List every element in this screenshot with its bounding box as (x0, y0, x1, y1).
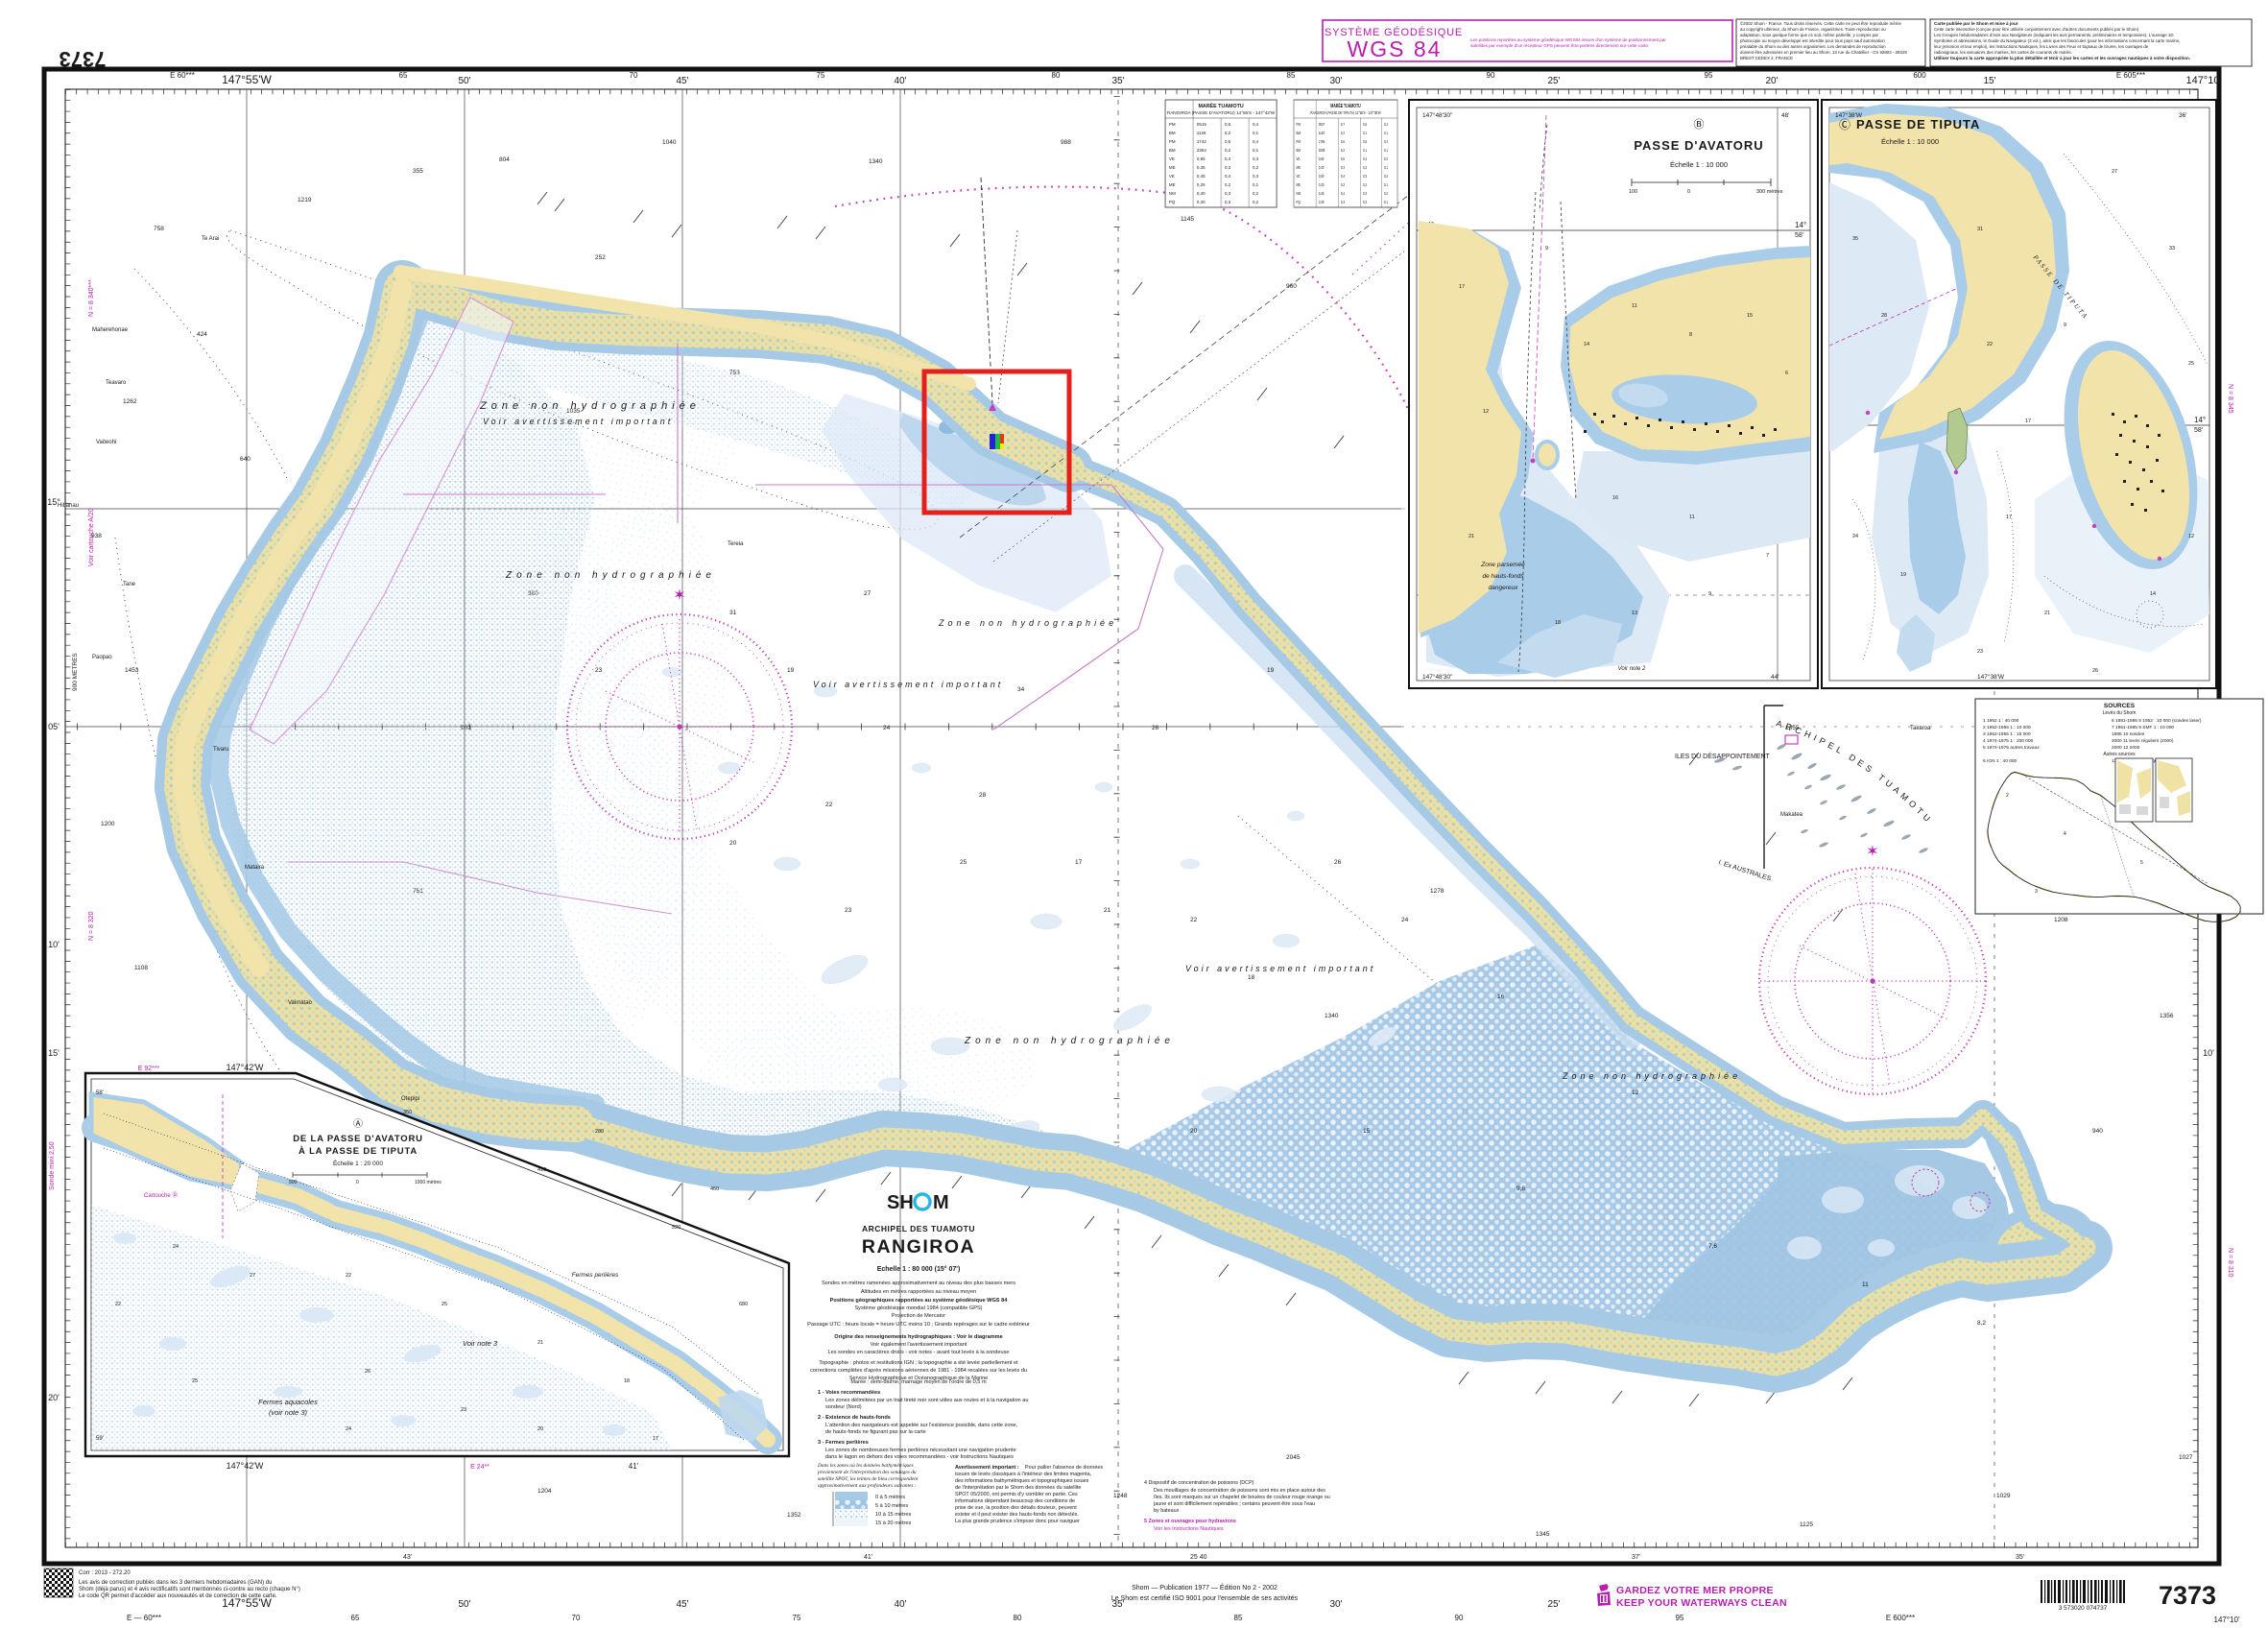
svg-text:WGS 84: WGS 84 (1348, 36, 1443, 61)
svg-text:58': 58' (1795, 232, 1803, 239)
svg-text:1742: 1742 (1197, 139, 1206, 144)
svg-text:proviennent de l'interprétatio: proviennent de l'interprétation des sond… (817, 1470, 917, 1475)
svg-text:13: 13 (1632, 610, 1637, 616)
svg-text:PQ: PQ (1297, 200, 1301, 204)
svg-text:L'attention des navigateurs es: L'attention des navigateurs est appelée … (825, 1423, 1018, 1428)
svg-text:2008: 2008 (1319, 148, 1325, 153)
svg-text:6 1981-1985 8 1952 : 10: 6 1981-1985 8 1952 : 10 000 (sondes lase… (2112, 718, 2202, 724)
svg-text:Carte publiée par le Shom et m: Carte publiée par le Shom et mise à jour (1934, 21, 2018, 26)
svg-text:0,3: 0,3 (1341, 165, 1345, 170)
svg-text:E 600***: E 600*** (1886, 1614, 1915, 1622)
svg-text:N = 8 340***: N = 8 340*** (88, 279, 95, 317)
svg-text:ME: ME (1297, 182, 1301, 187)
svg-text:7: 7 (1766, 553, 1769, 559)
svg-text:1140: 1140 (1319, 131, 1325, 135)
svg-text:26: 26 (2092, 668, 2098, 674)
svg-text:21: 21 (537, 1340, 543, 1346)
svg-text:11: 11 (1689, 515, 1695, 520)
svg-text:100: 100 (1629, 189, 1637, 195)
svg-text:14: 14 (2150, 591, 2156, 597)
svg-text:BM: BM (1297, 131, 1301, 135)
svg-text:Symboles et abréviations, le G: Symboles et abréviations, le Guide du Na… (1934, 38, 2180, 43)
svg-text:0,25: 0,25 (1197, 182, 1206, 187)
svg-text:90: 90 (1487, 71, 1495, 80)
svg-text:Voir note 3: Voir note 3 (463, 1339, 498, 1348)
svg-text:0,3: 0,3 (1225, 191, 1231, 196)
svg-text:1248: 1248 (1113, 1493, 1128, 1499)
svg-text:dangereux: dangereux (1489, 585, 1518, 591)
svg-text:leur précision et leur emploi): leur précision et leur emploi), les Inst… (1934, 44, 2149, 49)
svg-text:147°10': 147°10' (2185, 75, 2221, 86)
svg-text:22: 22 (1987, 342, 1993, 347)
svg-text:85: 85 (1234, 1614, 1243, 1622)
svg-text:Teavaro: Teavaro (106, 380, 127, 386)
svg-text:20: 20 (537, 1426, 543, 1432)
svg-text:RANGIROA (PASSE D'AVATORU) 14°: RANGIROA (PASSE D'AVATORU) 14°56'S - 147… (1167, 110, 1276, 116)
svg-text:Paopao: Paopao (92, 655, 112, 660)
svg-text:22: 22 (346, 1273, 351, 1279)
svg-text:0,40: 0,40 (1197, 191, 1206, 196)
svg-text:adaptation, sous quelque forme: adaptation, sous quelque forme que ce so… (1740, 33, 1879, 37)
svg-text:E — 60***: E — 60*** (127, 1614, 161, 1622)
svg-text:15: 15 (1747, 313, 1753, 319)
svg-text:25': 25' (1547, 76, 1560, 86)
svg-text:24: 24 (883, 725, 891, 731)
svg-text:0,1: 0,1 (1253, 148, 1259, 153)
svg-text:ME: ME (1297, 165, 1301, 170)
svg-text:Le Shom est certifié ISO 9001: Le Shom est certifié ISO 9001 pour l'ens… (1111, 1595, 1299, 1602)
svg-text:43': 43' (403, 1554, 412, 1561)
svg-text:0,35: 0,35 (1319, 200, 1325, 204)
svg-text:50': 50' (458, 76, 470, 86)
svg-text:Ⓑ: Ⓑ (1694, 118, 1705, 131)
svg-text:20': 20' (1765, 76, 1778, 86)
svg-text:758: 758 (154, 226, 164, 232)
svg-text:Zone non hydrographiée: Zone non hydrographiée (938, 618, 1117, 628)
svg-text:22: 22 (1190, 917, 1198, 923)
svg-text:0,55: 0,55 (1197, 156, 1206, 161)
svg-text:1204: 1204 (537, 1488, 552, 1495)
svg-text:12: 12 (1483, 409, 1489, 415)
svg-text:424: 424 (197, 331, 207, 338)
svg-text:PM: PM (1169, 122, 1176, 127)
svg-text:252: 252 (595, 254, 606, 261)
svg-text:80: 80 (1014, 1614, 1022, 1622)
svg-text:147°42'W: 147°42'W (227, 1063, 264, 1072)
svg-text:36': 36' (2179, 112, 2186, 119)
svg-text:48': 48' (1781, 112, 1789, 119)
svg-text:0,4: 0,4 (1253, 139, 1259, 144)
svg-text:Positions géographiques rappor: Positions géographiques rapportées au sy… (830, 1298, 1009, 1304)
svg-text:17: 17 (1459, 284, 1465, 290)
svg-text:4 1974-1975 1 : 200 000: 4 1974-1975 1 : 200 000 (1983, 738, 2034, 744)
svg-text:26: 26 (365, 1369, 370, 1375)
svg-text:147°38'W: 147°38'W (1835, 111, 1863, 119)
svg-text:18: 18 (1248, 974, 1255, 981)
svg-text:VE: VE (1297, 156, 1301, 161)
svg-text:1128: 1128 (1197, 131, 1206, 135)
svg-text:0,3: 0,3 (1341, 200, 1345, 204)
svg-text:Tane: Tane (123, 582, 136, 587)
svg-text:0,1: 0,1 (1253, 182, 1259, 187)
svg-text:10 à 15 mètres: 10 à 15 mètres (875, 1512, 912, 1518)
svg-text:satellites par exemple d'un ré: satellites par exemple d'un récepteur GP… (1470, 43, 1649, 48)
svg-text:8,2: 8,2 (1977, 1320, 1986, 1327)
svg-text:ME: ME (1169, 165, 1176, 170)
svg-text:0,30: 0,30 (1319, 182, 1325, 187)
svg-text:11: 11 (1862, 1281, 1869, 1288)
svg-text:Zone non hydrographiée: Zone non hydrographiée (479, 400, 701, 412)
svg-text:ILES DU DÉSAPPOINTEMENT: ILES DU DÉSAPPOINTEMENT (1675, 752, 1771, 760)
svg-text:2: 2 (2006, 793, 2009, 799)
svg-text:Les sondes en caractères droit: Les sondes en caractères droits - voir n… (827, 1350, 1009, 1355)
svg-text:988: 988 (1061, 139, 1071, 146)
svg-text:0,4: 0,4 (1225, 156, 1231, 161)
svg-text:65: 65 (399, 71, 408, 80)
svg-text:E 605***: E 605*** (2116, 71, 2145, 80)
svg-text:30': 30' (1329, 76, 1342, 86)
svg-text:GARDEZ VOTRE MER PROPRE: GARDEZ VOTRE MER PROPRE (1616, 1585, 1774, 1596)
svg-text:1985 10 sondes: 1985 10 sondes (2112, 731, 2145, 737)
svg-text:SOURCES: SOURCES (2104, 703, 2136, 709)
svg-text:15': 15' (1983, 76, 1995, 86)
svg-text:25 40: 25 40 (1190, 1554, 1207, 1561)
svg-text:19: 19 (1900, 572, 1906, 578)
svg-text:0: 0 (356, 1180, 359, 1185)
svg-text:E 60***: E 60*** (170, 71, 195, 80)
svg-text:23: 23 (1977, 649, 1983, 655)
svg-text:75: 75 (817, 71, 825, 80)
svg-text:1262: 1262 (123, 398, 137, 405)
svg-text:VE: VE (1297, 174, 1301, 179)
svg-text:35': 35' (1111, 76, 1124, 86)
svg-text:90: 90 (1455, 1614, 1464, 1622)
svg-text:70: 70 (572, 1614, 581, 1622)
svg-text:1756: 1756 (1319, 139, 1325, 144)
svg-text:Echelle 1 : 80 000 (15° 07'): Echelle 1 : 80 000 (15° 07') (877, 1265, 961, 1273)
svg-text:0,2: 0,2 (1341, 148, 1345, 153)
svg-text:Sondes en mètres ramenées appr: Sondes en mètres ramenées approximativem… (822, 1281, 1015, 1286)
svg-text:0,2: 0,2 (1253, 165, 1259, 170)
svg-text:2000 11 levés régu: 2000 11 levés réguliers (2000) (2112, 738, 2174, 744)
svg-text:4: 4 (2064, 831, 2066, 837)
svg-text:✶: ✶ (1866, 844, 1878, 860)
svg-text:14°: 14° (1795, 221, 1806, 229)
svg-text:Corr : 2013 - 272.20: Corr : 2013 - 272.20 (79, 1570, 131, 1576)
svg-text:(voir note 3): (voir note 3) (269, 1408, 308, 1417)
svg-text:1356: 1356 (2160, 1013, 2174, 1019)
svg-text:Passage UTC : heure locale = h: Passage UTC : heure locale = heure UTC m… (807, 1322, 1030, 1328)
svg-text:Zone non hydrographiée: Zone non hydrographiée (505, 570, 716, 581)
svg-text:9: 9 (1708, 591, 1711, 597)
svg-text:BREST CEDEX 2, FRANCE: BREST CEDEX 2, FRANCE (1740, 56, 1793, 60)
svg-text:0 à 5 mètres: 0 à 5 mètres (875, 1495, 905, 1500)
svg-text:0,3: 0,3 (1253, 174, 1259, 179)
svg-text:7 1961-1985 9 SMF 1 : 1: 7 1961-1985 9 SMF 1 : 10 000 (2112, 725, 2174, 730)
svg-text:23: 23 (845, 907, 852, 914)
svg-text:15': 15' (48, 1048, 60, 1058)
svg-text:La plus grande prudence s'impo: La plus grande prudence s'impose donc po… (955, 1519, 1080, 1524)
svg-text:BM: BM (1297, 148, 1301, 153)
svg-text:Dans les zones où les données: Dans les zones où les données bathymétri… (817, 1463, 914, 1469)
svg-text:45': 45' (676, 76, 688, 86)
svg-text:1 - Voies recommandées: 1 - Voies recommandées (818, 1390, 880, 1396)
svg-text:0,2: 0,2 (1341, 182, 1345, 187)
svg-text:0,1: 0,1 (1384, 131, 1388, 135)
svg-text:3 1952-1955 1 : 15 000: 3 1952-1955 1 : 15 000 (1983, 731, 2031, 737)
svg-text:35': 35' (2016, 1554, 2024, 1561)
svg-text:satellite SPOT, les teintes de: satellite SPOT, les teintes de bleu corr… (818, 1476, 919, 1482)
svg-text:0,4: 0,4 (1341, 174, 1346, 179)
svg-text:0,2: 0,2 (1341, 131, 1345, 135)
svg-text:radiosignaux, les annuaires de: radiosignaux, les annuaires des marées, … (1934, 50, 2072, 55)
svg-text:300 mètres: 300 mètres (1756, 189, 1783, 195)
svg-text:Topographie : photos et restit: Topographie : photos et restitutions IGN… (819, 1360, 1018, 1366)
svg-text:85: 85 (1287, 71, 1296, 80)
svg-text:de hauts-fonds ne figurant pas: de hauts-fonds ne figurant pas sur la ca… (825, 1429, 926, 1435)
svg-text:RANGIROA (PASSE DE TIPUTA) 14°: RANGIROA (PASSE DE TIPUTA) 14°58'S - 147… (1310, 109, 1380, 115)
svg-text:Cette carte interactive (conçu: Cette carte interactive (conçue pour êtr… (1934, 27, 2139, 32)
svg-text:8: 8 (1689, 332, 1692, 338)
svg-text:Fermes perlières: Fermes perlières (572, 1272, 620, 1279)
svg-text:Utiliser toujours la carte app: Utiliser toujours la carte appropriée la… (1934, 56, 2190, 60)
svg-text:Ⓒ: Ⓒ (1839, 118, 1850, 132)
svg-text:65: 65 (351, 1614, 360, 1622)
svg-text:23: 23 (595, 667, 603, 674)
svg-text:0,2: 0,2 (1363, 200, 1367, 204)
svg-text:40': 40' (894, 76, 906, 86)
svg-text:de l'interprétation par le Sho: de l'interprétation par le Shom des donn… (955, 1485, 1081, 1491)
svg-text:680: 680 (739, 1302, 748, 1307)
svg-text:0527: 0527 (1319, 122, 1325, 127)
svg-text:3: 3 (2035, 889, 2038, 895)
svg-text:45': 45' (676, 1599, 688, 1610)
svg-text:9: 9 (2064, 323, 2066, 328)
svg-text:NM: NM (1169, 191, 1176, 196)
svg-text:0,4: 0,4 (1253, 122, 1259, 127)
svg-text:27: 27 (864, 590, 871, 597)
svg-text:147°42'W: 147°42'W (227, 1461, 264, 1471)
svg-text:41': 41' (864, 1554, 872, 1561)
svg-text:M: M (933, 1192, 949, 1213)
svg-text:35: 35 (1852, 236, 1858, 242)
svg-text:59': 59' (96, 1436, 104, 1442)
svg-text:ARCHIPEL DES TUAMOTU: ARCHIPEL DES TUAMOTU (862, 1224, 975, 1233)
svg-text:0,2: 0,2 (1384, 191, 1388, 196)
svg-text:600: 600 (1913, 71, 1926, 80)
svg-text:Zone non hydrographiée: Zone non hydrographiée (1562, 1071, 1741, 1081)
svg-text:VE: VE (1169, 174, 1175, 179)
svg-text:21: 21 (2044, 610, 2050, 616)
svg-text:Te Arai: Te Arai (202, 236, 219, 242)
svg-text:0,3: 0,3 (1363, 174, 1367, 179)
svg-text:Shom (déjà parus) et 4 avis re: Shom (déjà parus) et 4 avis rectificatif… (79, 1587, 300, 1592)
svg-text:2 1952-1955 1 : 10 000: 2 1952-1955 1 : 10 000 (1983, 725, 2031, 730)
svg-text:31: 31 (729, 610, 737, 616)
svg-text:3 - Fermes perlières: 3 - Fermes perlières (818, 1440, 869, 1446)
svg-text:23: 23 (461, 1407, 466, 1413)
svg-text:5 Zones et ouvrages pour hy: 5 Zones et ouvrages pour hydravions (1144, 1519, 1236, 1524)
svg-text:75: 75 (793, 1614, 801, 1622)
svg-text:27: 27 (250, 1273, 255, 1279)
svg-text:20: 20 (729, 840, 737, 847)
svg-text:4 Dispositif de concentrati: 4 Dispositif de concentration de poisson… (1144, 1480, 1254, 1486)
svg-text:BM: BM (1169, 148, 1176, 153)
svg-text:24: 24 (346, 1426, 351, 1432)
svg-text:0,4: 0,4 (1341, 191, 1346, 196)
svg-text:corrections complètes d'après: corrections complètes d'après missions a… (810, 1368, 1027, 1374)
svg-text:0,1: 0,1 (1384, 148, 1388, 153)
svg-text:17: 17 (653, 1436, 658, 1442)
svg-text:0,45: 0,45 (1197, 174, 1206, 179)
svg-text:0515: 0515 (1197, 122, 1206, 127)
svg-text:25': 25' (1547, 1599, 1560, 1610)
svg-text:0,30: 0,30 (1197, 200, 1206, 204)
svg-text:0,3: 0,3 (1384, 139, 1388, 144)
svg-text:doivent être adressées en prem: doivent être adressées en premier lieu a… (1740, 50, 1907, 55)
svg-text:12: 12 (2188, 534, 2194, 539)
svg-text:44': 44' (1771, 674, 1779, 681)
svg-text:N = 8 345: N = 8 345 (2227, 384, 2233, 414)
svg-text:BM: BM (1169, 131, 1176, 135)
svg-text:Mataira: Mataira (245, 865, 265, 871)
svg-text:issues de levés classiques à l: issues de levés classiques à l'intérieur… (955, 1472, 1092, 1477)
svg-text:7373: 7373 (2159, 1581, 2216, 1610)
svg-text:05': 05' (48, 722, 60, 731)
svg-text:25: 25 (960, 859, 967, 866)
svg-text:24: 24 (1852, 534, 1858, 539)
svg-text:0,2: 0,2 (1253, 191, 1259, 196)
svg-text:280: 280 (595, 1129, 604, 1135)
svg-text:95: 95 (1705, 71, 1713, 80)
svg-text:50': 50' (458, 1599, 470, 1610)
svg-text:Tereia: Tereia (728, 541, 744, 547)
svg-text:1125: 1125 (1800, 1521, 1813, 1528)
svg-text:Les zones délimitées par un tr: Les zones délimitées par un trait tireté… (825, 1398, 1028, 1403)
svg-text:0,6: 0,6 (1225, 122, 1231, 127)
svg-text:41': 41' (629, 1462, 639, 1471)
svg-text:approximativement aux profonde: approximativement aux profondeurs suivan… (818, 1482, 917, 1489)
svg-text:6 IGN 1 : 40 000: 6 IGN 1 : 40 000 (1983, 758, 2017, 764)
svg-text:VE: VE (1169, 156, 1175, 161)
svg-text:Vaimatao: Vaimatao (288, 1000, 313, 1006)
svg-text:11: 11 (1632, 303, 1637, 309)
svg-text:2 - Existence de hauts-fonds: 2 - Existence de hauts-fonds (818, 1415, 891, 1421)
svg-text:À LA PASSE DE TIPUTA: À LA PASSE DE TIPUTA (298, 1146, 418, 1157)
svg-text:0,2: 0,2 (1363, 182, 1367, 187)
svg-text:0,5: 0,5 (1363, 139, 1367, 144)
svg-text:147°55'W: 147°55'W (222, 73, 272, 86)
svg-text:460: 460 (710, 1186, 719, 1192)
svg-text:exister et il peut exister des: exister et il peut exister des hauts-fon… (955, 1512, 1079, 1518)
svg-text:0,1: 0,1 (1363, 148, 1367, 153)
svg-text:1352: 1352 (787, 1512, 801, 1519)
svg-text:KEEP YOUR WATERWAYS CLEAN: KEEP YOUR WATERWAYS CLEAN (1616, 1597, 1787, 1609)
svg-text:Échelle 1 : 20 000: Échelle 1 : 20 000 (333, 1159, 383, 1167)
svg-text:938: 938 (91, 533, 102, 539)
svg-text:19: 19 (1267, 667, 1275, 674)
svg-text:1040: 1040 (662, 139, 677, 146)
svg-text:58': 58' (96, 1090, 104, 1096)
svg-text:0,1: 0,1 (1384, 182, 1388, 187)
svg-text:16: 16 (1612, 495, 1618, 501)
svg-text:0,60: 0,60 (1319, 156, 1325, 161)
svg-text:1027: 1027 (2179, 1454, 2193, 1461)
svg-text:147°48'30": 147°48'30" (1422, 111, 1453, 119)
svg-text:0,2: 0,2 (1225, 148, 1231, 153)
svg-text:0,4: 0,4 (1225, 174, 1231, 179)
svg-text:Shom — Publication 1977 — Édit: Shom — Publication 1977 — Édition No 2 -… (1132, 1583, 1277, 1592)
svg-text:0,3: 0,3 (1384, 122, 1388, 127)
svg-text:0,4: 0,4 (1363, 156, 1368, 161)
svg-text:0,1: 0,1 (1253, 131, 1259, 135)
svg-text:10': 10' (48, 940, 60, 949)
svg-text:SPOT 05/2000, ont permis d'y c: SPOT 05/2000, ont permis d'y combler en … (955, 1492, 1078, 1497)
svg-text:1108: 1108 (134, 965, 148, 971)
svg-text:E 92***: E 92*** (138, 1065, 160, 1072)
svg-text:0,35: 0,35 (1197, 165, 1206, 170)
svg-text:Altitudes en mètres rapportées: Altitudes en mètres rapportées au niveau… (861, 1289, 976, 1295)
svg-text:✶: ✶ (673, 587, 685, 604)
svg-text:22: 22 (825, 802, 833, 808)
svg-text:0,40: 0,40 (1319, 165, 1325, 170)
svg-text:photocopie ou moyen développé: photocopie ou moyen développé est interd… (1740, 38, 1885, 43)
svg-text:Les Groupes hebdomadaires d'Av: Les Groupes hebdomadaires d'Avis aux Nav… (1934, 33, 2174, 37)
svg-text:PM: PM (1297, 122, 1301, 127)
svg-text:0,45: 0,45 (1319, 191, 1325, 196)
svg-text:Avertissement important :: Avertissement important : (955, 1465, 1019, 1471)
svg-text:Vaiteohi: Vaiteohi (96, 440, 116, 445)
svg-text:PASSE DE TIPUTA: PASSE DE TIPUTA (1856, 117, 1980, 132)
svg-text:0,5: 0,5 (1225, 139, 1231, 144)
svg-text:9: 9 (1545, 246, 1548, 251)
svg-text:2354: 2354 (1197, 148, 1206, 153)
svg-text:Cartouche Ⓑ: Cartouche Ⓑ (144, 1191, 178, 1199)
svg-text:0,7: 0,7 (1341, 122, 1345, 127)
svg-text:350: 350 (403, 1110, 412, 1115)
svg-text:0,2: 0,2 (1225, 182, 1231, 187)
svg-text:1278: 1278 (1430, 888, 1444, 895)
svg-text:1029: 1029 (1996, 1493, 2011, 1499)
svg-text:des informations bathymétrique: des informations bathymétriques et topog… (955, 1478, 1089, 1484)
svg-text:Makatea: Makatea (1780, 812, 1803, 818)
svg-text:27: 27 (2112, 169, 2117, 175)
svg-text:12: 12 (1632, 1089, 1639, 1096)
svg-text:2000 12 2000: 2000 12 2000 (2112, 745, 2140, 751)
svg-text:ME: ME (1169, 182, 1176, 187)
svg-text:19: 19 (787, 667, 795, 674)
svg-text:147°48'30": 147°48'30" (1422, 673, 1453, 681)
svg-text:Les avis de correction publiés: Les avis de correction publiés dans les … (79, 1580, 272, 1586)
svg-text:©2002 Shom - France. Tous droi: ©2002 Shom - France. Tous droits réservé… (1740, 21, 1901, 26)
svg-text:E 24**: E 24** (470, 1464, 489, 1471)
svg-text:Ⓐ: Ⓐ (353, 1118, 363, 1130)
svg-text:147°10': 147°10' (2214, 1616, 2240, 1624)
svg-text:1453: 1453 (125, 667, 139, 674)
svg-text:15: 15 (1363, 1128, 1371, 1135)
svg-text:Voir les Instructions Nautique: Voir les Instructions Nautiques (1154, 1526, 1224, 1532)
svg-text:Voir avertissement important: Voir avertissement important (813, 680, 1003, 689)
svg-text:Échelle 1 : 10 000: Échelle 1 : 10 000 (1881, 137, 1939, 146)
svg-text:0,1: 0,1 (1363, 131, 1367, 135)
svg-text:20: 20 (1190, 1128, 1198, 1135)
svg-text:0,50: 0,50 (1319, 174, 1325, 179)
svg-text:0,6: 0,6 (1341, 139, 1345, 144)
svg-text:58': 58' (2194, 427, 2203, 434)
svg-text:7,6: 7,6 (1708, 1243, 1717, 1250)
svg-text:Otepipi: Otepipi (401, 1096, 419, 1102)
svg-text:37': 37' (1632, 1554, 1640, 1561)
